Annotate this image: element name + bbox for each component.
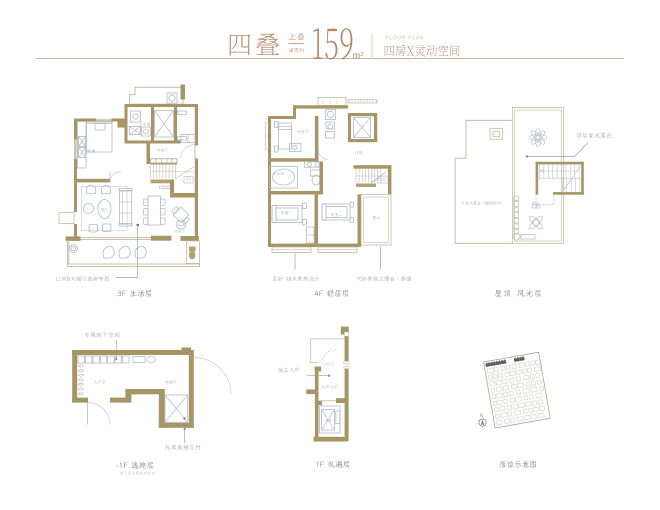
svg-text:FLOOR PLAN: FLOOR PLAN <box>386 36 425 42</box>
svg-text:m²: m² <box>353 51 364 62</box>
